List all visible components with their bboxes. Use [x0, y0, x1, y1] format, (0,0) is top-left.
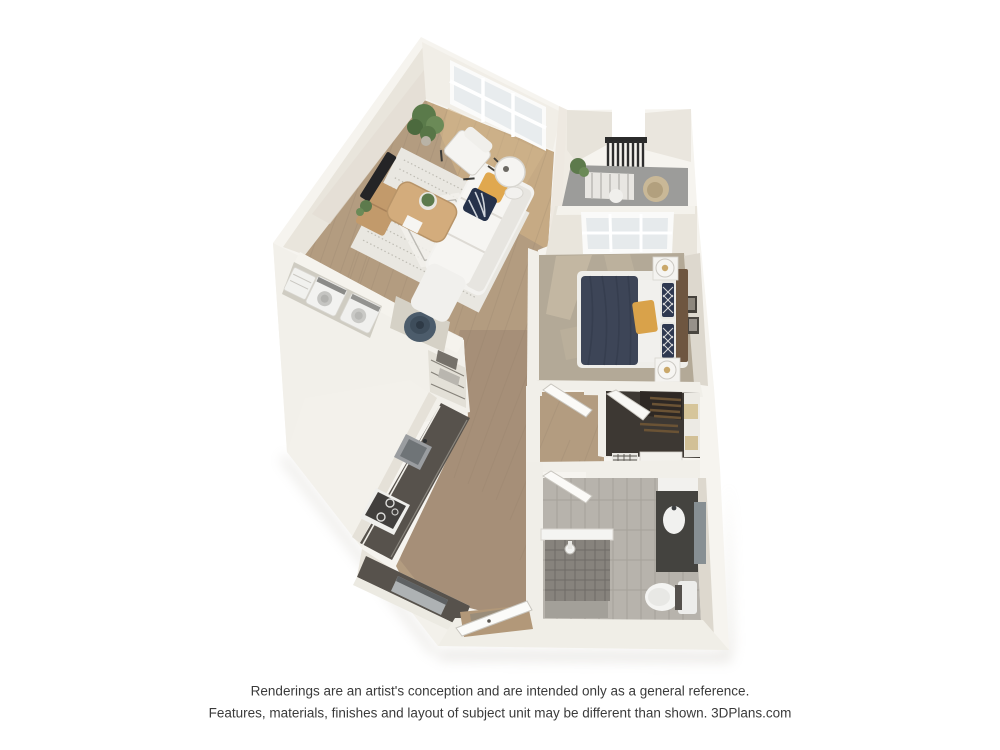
svg-text:Features, materials, finishes: Features, materials, finishes and layout… [209, 706, 792, 721]
svg-text:Renderings are an artist's con: Renderings are an artist's conception an… [251, 684, 750, 699]
